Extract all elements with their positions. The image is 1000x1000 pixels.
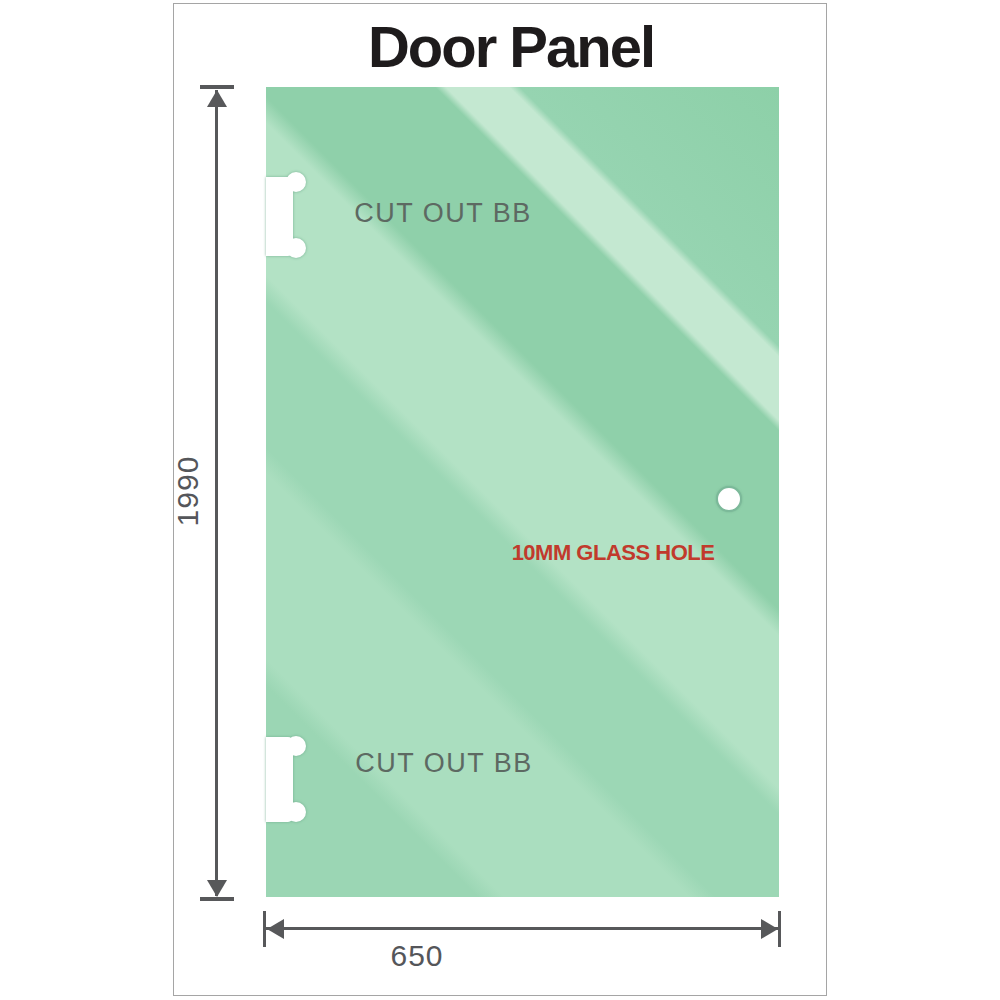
hinge-cutout-top-lower-lobe — [286, 238, 306, 258]
width-dimension-right-tick — [778, 911, 781, 947]
hinge-cutout-top-upper-lobe — [286, 172, 306, 192]
height-dimension-top-cap — [200, 85, 234, 89]
diagram-frame: Door Panel CUT OUT BB CUT OUT BB 10MM GL… — [173, 3, 827, 996]
arrowhead-right-icon — [761, 919, 778, 939]
cutout-top-label: CUT OUT BB — [354, 198, 532, 229]
glass-hole-label: 10MM GLASS HOLE — [512, 540, 715, 566]
width-dimension-line — [266, 927, 779, 930]
arrowhead-left-icon — [267, 919, 284, 939]
width-dimension-value: 650 — [390, 939, 443, 973]
arrowhead-up-icon — [207, 90, 227, 107]
height-dimension-bottom-cap — [200, 897, 234, 901]
hinge-cutout-bottom-lower-lobe — [286, 802, 306, 822]
height-dimension-value: 1990 — [171, 456, 205, 527]
page-title: Door Panel — [185, 18, 837, 76]
glass-hole-marker — [716, 486, 742, 512]
hinge-cutout-top — [266, 171, 308, 259]
arrowhead-down-icon — [207, 880, 227, 897]
width-dimension-left-tick — [263, 911, 266, 947]
height-dimension-line — [215, 90, 218, 896]
hinge-cutout-bottom-upper-lobe — [286, 736, 306, 756]
cutout-bottom-label: CUT OUT BB — [355, 748, 533, 779]
hinge-cutout-bottom — [266, 732, 308, 824]
